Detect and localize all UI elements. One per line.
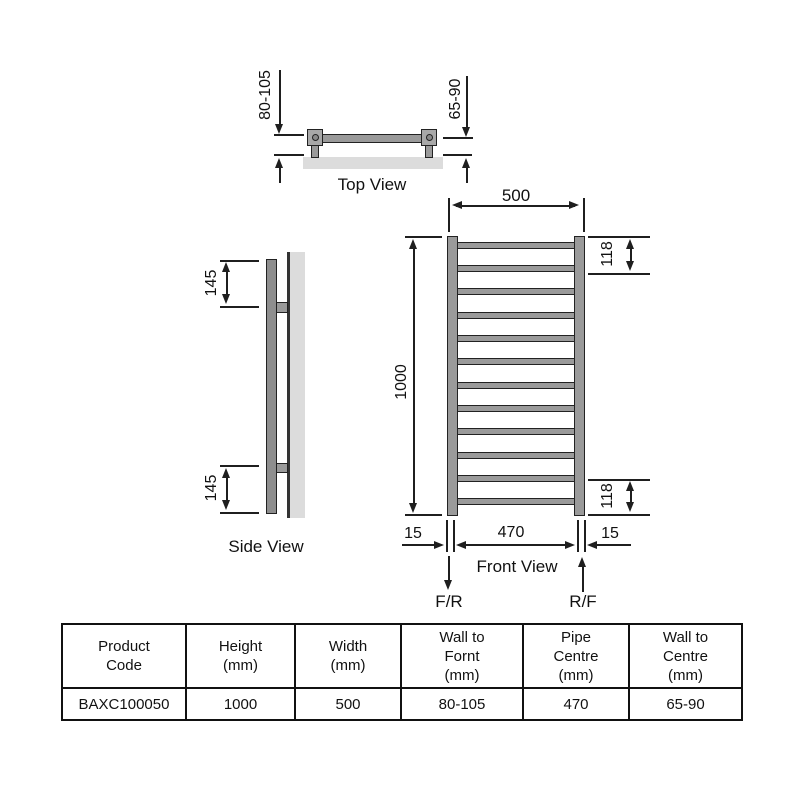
arrow-down-icon (222, 500, 230, 510)
dim-width-label: 500 (502, 186, 530, 206)
dim-line (279, 70, 281, 124)
header-wall-to-front: Wall to Fornt (mm) (401, 624, 523, 688)
dim-line (456, 205, 575, 207)
extension-line (583, 198, 585, 232)
extension-line (588, 479, 650, 481)
dim-bracket-bottom-label: 145 (203, 475, 221, 502)
dim-pipe-centres-label: 470 (498, 524, 525, 542)
header-product-code: Product Code (62, 624, 186, 688)
arrow-down-icon (275, 124, 283, 134)
arrow-down-icon (222, 294, 230, 304)
dim-wall-to-centre-label: 65-90 (447, 79, 465, 120)
top-view-bracket-right-screw-icon (426, 134, 433, 141)
dim-line (402, 544, 436, 546)
spec-table-data-row: BAXC100050 1000 500 80-105 470 65-90 (62, 688, 742, 720)
radiator-rung (457, 358, 576, 365)
header-height: Height (mm) (186, 624, 295, 688)
front-view-label: Front View (477, 557, 558, 577)
extension-line (274, 134, 304, 136)
extension-line (405, 236, 442, 238)
flow-left-line (448, 556, 450, 582)
dim-line (466, 167, 468, 183)
top-view-bracket-left-screw-icon (312, 134, 319, 141)
extension-line (443, 154, 472, 156)
radiator-rung (457, 452, 576, 459)
arrow-right-icon (569, 201, 579, 209)
radiator-rung (457, 335, 576, 342)
side-view-label: Side View (228, 537, 303, 557)
header-wall-to-centre: Wall to Centre (mm) (629, 624, 742, 688)
dim-pipe-inset-left-label: 15 (404, 525, 422, 543)
spec-table-header-row: Product Code Height (mm) Width (mm) Wall… (62, 624, 742, 688)
header-width: Width (mm) (295, 624, 401, 688)
extension-line (220, 306, 259, 308)
arrow-down-icon (626, 502, 634, 512)
radiator-rung (457, 498, 576, 505)
top-view-wall (303, 157, 443, 169)
dim-bottom-rung-label: 118 (599, 483, 617, 509)
extension-line (405, 514, 442, 516)
cell-pipe-centre: 470 (523, 688, 629, 720)
radiator-rung (457, 312, 576, 319)
front-view-bar-right (574, 236, 585, 516)
side-view-bracket-top (276, 302, 288, 313)
side-view-wall (287, 252, 305, 518)
flow-right-label: R/F (569, 592, 596, 612)
arrow-right-icon (565, 541, 575, 549)
extension-line (220, 512, 259, 514)
extension-line (453, 520, 455, 552)
dim-top-rung-label: 118 (599, 241, 617, 267)
extension-line (584, 520, 586, 552)
extension-line (446, 520, 448, 552)
radiator-rung (457, 405, 576, 412)
extension-line (577, 520, 579, 552)
radiator-rung (457, 475, 576, 482)
extension-line (588, 514, 650, 516)
cell-width: 500 (295, 688, 401, 720)
dim-wall-to-front-label: 80-105 (257, 70, 275, 120)
radiator-rung (457, 382, 576, 389)
radiator-rung (457, 288, 576, 295)
side-view-bracket-bottom (276, 463, 288, 474)
flow-right-line (582, 565, 584, 592)
top-view-label: Top View (338, 175, 407, 195)
dim-height-label: 1000 (393, 364, 411, 400)
side-view-radiator-bar (266, 259, 278, 514)
radiator-rung (457, 242, 576, 249)
extension-line (443, 137, 473, 139)
dim-line (595, 544, 631, 546)
arrow-right-icon (434, 541, 444, 549)
cell-product-code: BAXC100050 (62, 688, 186, 720)
radiator-rung (457, 428, 576, 435)
spec-table: Product Code Height (mm) Width (mm) Wall… (61, 623, 743, 721)
flow-left-label: F/R (435, 592, 462, 612)
dim-line (279, 167, 281, 183)
cell-wall-to-centre: 65-90 (629, 688, 742, 720)
extension-line (448, 198, 450, 232)
arrow-down-icon (444, 580, 452, 590)
extension-line (588, 236, 650, 238)
arrow-down-icon (409, 503, 417, 513)
header-pipe-centre: Pipe Centre (mm) (523, 624, 629, 688)
radiator-rung (457, 265, 576, 272)
dim-line (466, 76, 468, 127)
top-view-tube (310, 134, 437, 143)
arrow-down-icon (626, 261, 634, 271)
dim-bracket-top-label: 145 (203, 270, 221, 297)
top-view-stem-left (311, 145, 319, 158)
dim-pipe-inset-right-label: 15 (601, 525, 619, 543)
dim-line (413, 248, 415, 504)
diagram-canvas: 80-105 65-90 Top View 145 145 Side View (0, 0, 800, 800)
arrow-left-icon (452, 201, 462, 209)
top-view-stem-right (425, 145, 433, 158)
dim-line (463, 544, 569, 546)
front-view-bar-left (447, 236, 458, 516)
cell-height: 1000 (186, 688, 295, 720)
extension-line (588, 273, 650, 275)
extension-line (274, 154, 304, 156)
arrow-down-icon (462, 127, 470, 137)
cell-wall-to-front: 80-105 (401, 688, 523, 720)
